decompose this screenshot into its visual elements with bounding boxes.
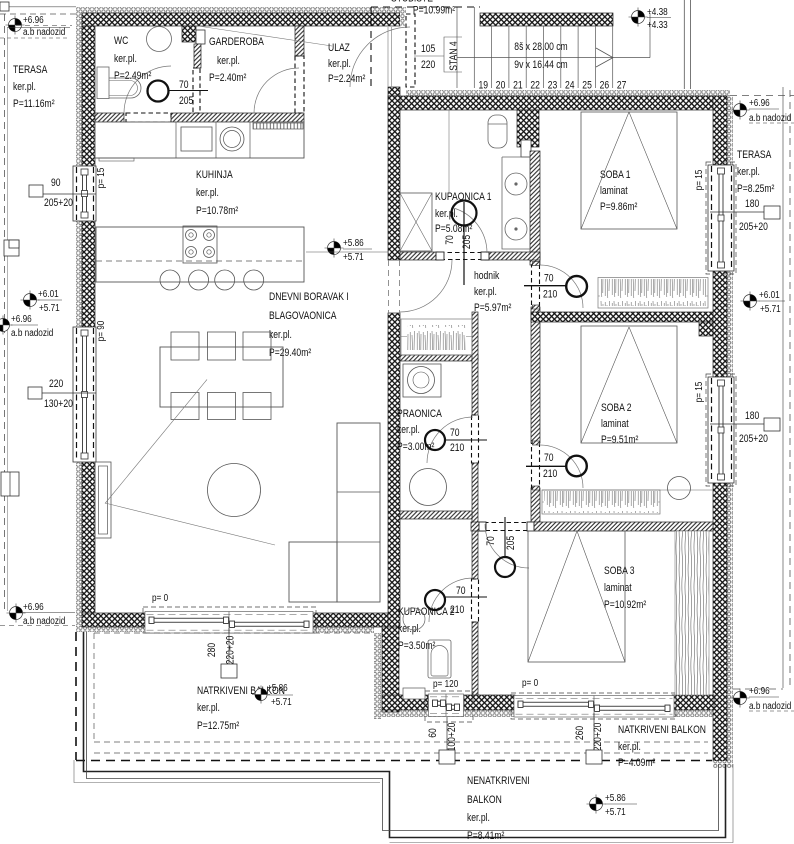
svg-text:90: 90 (51, 177, 61, 189)
svg-text:ker.pl.: ker.pl. (618, 741, 641, 753)
svg-text:a.b nadozid: a.b nadozid (11, 326, 53, 338)
svg-text:P=9.51m²: P=9.51m² (601, 434, 639, 446)
svg-text:70: 70 (444, 235, 456, 245)
svg-text:+6.96: +6.96 (23, 600, 44, 612)
svg-text:p= 90: p= 90 (94, 321, 106, 342)
svg-text:220: 220 (49, 378, 64, 390)
svg-text:P=2.40m²: P=2.40m² (209, 72, 247, 84)
svg-text:105: 105 (421, 43, 436, 55)
svg-text:STAN 4: STAN 4 (448, 41, 460, 71)
svg-text:P=9.86m²: P=9.86m² (600, 201, 638, 213)
svg-text:+5.86: +5.86 (605, 791, 626, 803)
svg-text:+6.01: +6.01 (38, 287, 59, 299)
svg-text:ker.pl.: ker.pl. (13, 81, 36, 93)
svg-text:+5.71: +5.71 (605, 805, 626, 817)
svg-text:P=29.40m²: P=29.40m² (269, 347, 312, 359)
svg-text:p= 120: p= 120 (433, 677, 458, 689)
svg-text:P=10.99m²: P=10.99m² (413, 5, 456, 17)
svg-text:P=12.75m²: P=12.75m² (197, 720, 240, 732)
svg-text:70: 70 (456, 585, 466, 597)
svg-text:NENATKRIVENI: NENATKRIVENI (467, 775, 530, 787)
svg-text:205: 205 (461, 234, 473, 249)
svg-text:100+20: 100+20 (446, 722, 458, 751)
svg-text:19: 19 (479, 80, 489, 92)
svg-text:SOBA 2: SOBA 2 (601, 402, 632, 414)
svg-text:NATKRIVENI BALKON: NATKRIVENI BALKON (618, 724, 706, 736)
svg-text:+5.86: +5.86 (267, 681, 288, 693)
svg-text:220+20: 220+20 (225, 635, 237, 664)
svg-text:ker.pl.: ker.pl. (197, 702, 220, 714)
svg-text:p= 15: p= 15 (692, 170, 704, 191)
svg-text:laminat: laminat (604, 582, 632, 594)
svg-text:ker.pl.: ker.pl. (328, 58, 351, 70)
svg-text:DNEVNI BORAVAK I: DNEVNI BORAVAK I (269, 291, 349, 303)
svg-text:205: 205 (505, 535, 517, 550)
svg-text:ker.pl.: ker.pl. (397, 424, 420, 436)
svg-text:KUPAONICA 1: KUPAONICA 1 (435, 191, 492, 203)
svg-text:STUBIŠTE: STUBIŠTE (391, 0, 433, 5)
svg-text:70: 70 (485, 536, 497, 546)
svg-text:20: 20 (496, 80, 506, 92)
svg-text:P=10.78m²: P=10.78m² (196, 205, 239, 217)
svg-text:KUHINJA: KUHINJA (196, 169, 233, 181)
svg-text:+5.71: +5.71 (39, 301, 60, 313)
svg-text:25: 25 (582, 80, 592, 92)
svg-text:+6.96: +6.96 (749, 96, 770, 108)
svg-text:70: 70 (544, 273, 554, 285)
svg-text:P=5.08m²: P=5.08m² (435, 223, 473, 235)
svg-text:TERASA: TERASA (737, 149, 772, 161)
svg-text:+4.38: +4.38 (647, 5, 668, 17)
svg-text:a.b nadozid: a.b nadozid (23, 25, 65, 37)
svg-text:a.b nadozid: a.b nadozid (23, 614, 65, 626)
svg-text:a.b nadozid: a.b nadozid (749, 699, 791, 711)
svg-text:ker.pl.: ker.pl. (217, 55, 240, 67)
svg-text:P=3.50m²: P=3.50m² (398, 640, 436, 652)
svg-text:TERASA: TERASA (13, 64, 48, 76)
svg-text:+6.96: +6.96 (23, 13, 44, 25)
svg-text:WC: WC (114, 35, 128, 47)
svg-text:+5.71: +5.71 (271, 695, 292, 707)
svg-text:P=11.16m²: P=11.16m² (13, 98, 55, 110)
svg-text:p= 0: p= 0 (522, 676, 538, 688)
svg-text:ULAZ: ULAZ (328, 42, 350, 54)
svg-text:p= 15: p= 15 (94, 168, 106, 189)
svg-text:70: 70 (450, 427, 460, 439)
svg-text:KUPAONICA 2: KUPAONICA 2 (398, 606, 455, 618)
svg-text:22: 22 (530, 80, 540, 92)
svg-text:P=8.41m²: P=8.41m² (467, 830, 505, 842)
svg-text:P=10.92m²: P=10.92m² (604, 599, 647, 611)
svg-text:P=2.24m²: P=2.24m² (328, 73, 366, 85)
svg-text:P=4.09m²: P=4.09m² (618, 757, 656, 769)
svg-text:180: 180 (745, 410, 760, 422)
svg-text:+4.33: +4.33 (647, 18, 668, 30)
svg-text:24: 24 (565, 80, 575, 92)
svg-text:ker.pl.: ker.pl. (114, 53, 137, 65)
svg-text:a.b nadozid: a.b nadozid (749, 111, 791, 123)
svg-text:220: 220 (421, 59, 436, 71)
svg-text:70: 70 (544, 452, 554, 464)
svg-text:GARDEROBA: GARDEROBA (209, 36, 264, 48)
svg-text:p= 15: p= 15 (692, 382, 704, 403)
svg-text:ker.pl.: ker.pl. (196, 187, 219, 199)
svg-text:180: 180 (745, 198, 760, 210)
svg-text:26: 26 (600, 80, 610, 92)
svg-text:SOBA 3: SOBA 3 (604, 565, 635, 577)
svg-text:ker.pl.: ker.pl. (474, 286, 497, 298)
svg-text:ker.pl.: ker.pl. (737, 166, 760, 178)
svg-text:21: 21 (513, 80, 523, 92)
svg-text:+6.96: +6.96 (749, 684, 770, 696)
svg-text:ker.pl.: ker.pl. (269, 329, 292, 341)
svg-text:PRAONICA: PRAONICA (397, 408, 442, 420)
svg-text:27: 27 (617, 80, 627, 92)
svg-text:205+20: 205+20 (739, 433, 768, 445)
svg-text:130+20: 130+20 (44, 398, 73, 410)
svg-text:p= 0: p= 0 (152, 591, 168, 603)
svg-text:210: 210 (450, 442, 465, 454)
svg-text:23: 23 (548, 80, 558, 92)
svg-text:P=5.97m²: P=5.97m² (474, 302, 512, 314)
svg-text:60: 60 (427, 728, 439, 738)
svg-text:P=3.00m²: P=3.00m² (397, 441, 435, 453)
svg-text:9v x 16.44 cm: 9v x 16.44 cm (514, 59, 567, 71)
svg-text:205+20: 205+20 (44, 197, 73, 209)
svg-text:205+20: 205+20 (739, 221, 768, 233)
svg-text:260: 260 (574, 725, 586, 740)
svg-text:ker.pl.: ker.pl. (467, 812, 490, 824)
svg-text:P=8.25m²: P=8.25m² (737, 183, 775, 195)
svg-text:70: 70 (179, 79, 189, 91)
svg-text:205: 205 (179, 95, 194, 107)
svg-text:+6.96: +6.96 (11, 312, 32, 324)
svg-text:210: 210 (543, 468, 558, 480)
svg-text:hodnik: hodnik (474, 270, 499, 282)
svg-text:+5.86: +5.86 (343, 236, 364, 248)
svg-text:280: 280 (206, 642, 218, 657)
svg-text:8š x 28.00 cm: 8š x 28.00 cm (514, 41, 567, 53)
svg-text:BLAGOVAONICA: BLAGOVAONICA (269, 310, 337, 322)
svg-text:laminat: laminat (601, 418, 629, 430)
svg-text:+5.71: +5.71 (760, 302, 781, 314)
svg-text:210: 210 (543, 289, 558, 301)
svg-text:laminat: laminat (600, 185, 628, 197)
svg-text:+6.01: +6.01 (759, 288, 780, 300)
svg-text:ker.pl.: ker.pl. (435, 208, 458, 220)
svg-text:BALKON: BALKON (467, 794, 502, 806)
